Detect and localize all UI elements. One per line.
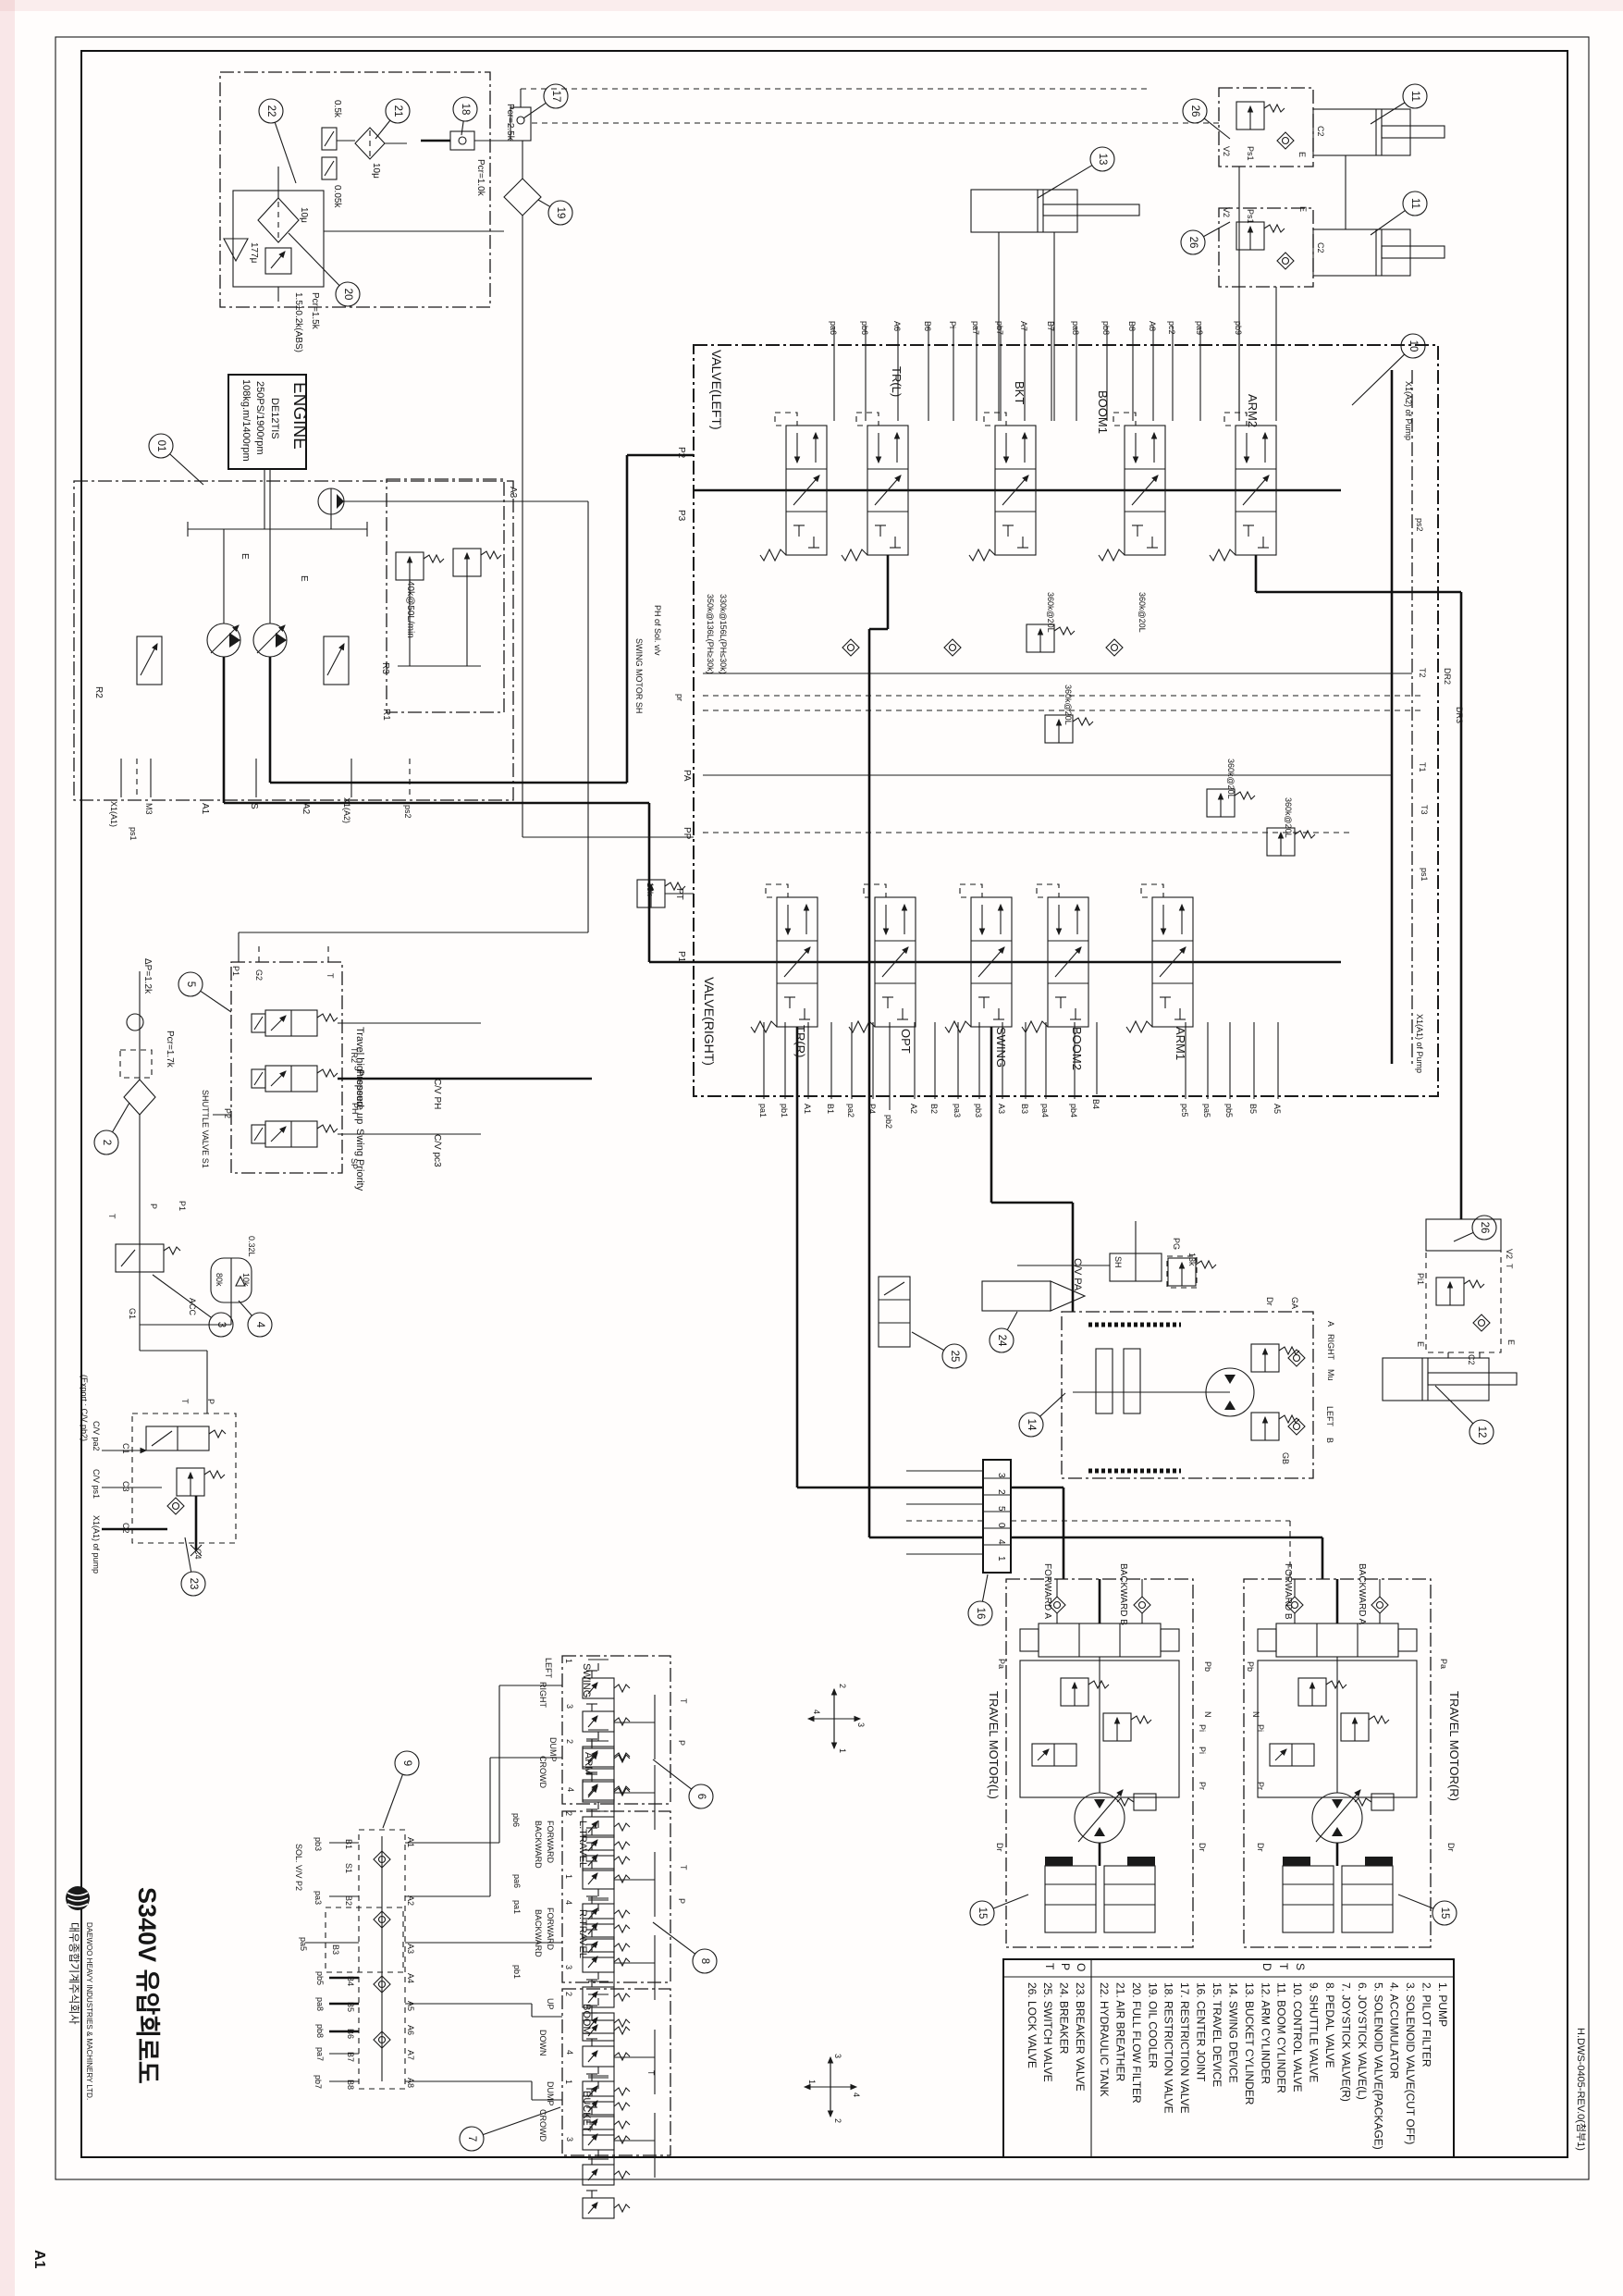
schematic-label: Pi — [1256, 1724, 1265, 1732]
schematic-label: S1 — [344, 1863, 353, 1873]
schematic-label: 1 — [564, 2080, 573, 2084]
schematic-label: Dr — [1198, 1843, 1207, 1852]
schematic-label: BOOM2 — [1070, 1027, 1084, 1070]
schematic-label: 2 — [565, 1739, 574, 1744]
schematic-label: pc5 — [1180, 1104, 1189, 1117]
schematic-label: 10k — [241, 1273, 251, 1287]
balloon-number: 2 — [101, 1140, 112, 1145]
schematic-label: pa7 — [971, 321, 980, 335]
schematic-label: A5 — [406, 2001, 415, 2011]
schematic-label: 3 — [996, 1473, 1006, 1478]
balloon-number: 15 — [1439, 1907, 1450, 1920]
daewoo-logo — [66, 1886, 90, 1910]
schematic-label: E — [1416, 1341, 1425, 1347]
legend-item-std: 21. AIR BREATHER — [1113, 1982, 1126, 2081]
schematic-label: G2 — [254, 969, 264, 981]
balloon-number: 5 — [185, 981, 196, 987]
schematic-label: C/V pc3 — [432, 1134, 442, 1167]
schematic-label: (Export : C/V pb2) — [80, 1375, 89, 1441]
schematic-label: 1 — [564, 1874, 573, 1879]
company-name-ko: 대우종합기계주식회사 — [68, 1922, 80, 2024]
schematic-label: V2 — [1505, 1249, 1514, 1259]
schematic-label: pb6 — [860, 321, 869, 335]
schematic-label: 108kg.m/1400rpm — [240, 379, 252, 462]
balloon-number: 8 — [699, 1958, 710, 1964]
balloon-number: 11 — [1409, 198, 1420, 209]
schematic-label: DUMP — [546, 2081, 555, 2106]
balloon-leader — [153, 1275, 211, 1317]
schematic-label: 360k@20L — [1064, 685, 1073, 725]
schematic-label: C/V ps1 — [92, 1469, 101, 1499]
schematic-label: 10μ — [299, 207, 309, 223]
swing-device-group — [879, 1027, 1313, 1478]
component-balloon-24: 24 — [990, 1312, 1017, 1352]
schematic-label: A3 — [508, 487, 518, 499]
schematic-label: E — [1506, 1339, 1516, 1345]
schematic-label: M3 — [144, 803, 154, 815]
schematic-label: UP — [546, 1998, 555, 2010]
schematic-label: pb7 — [314, 2075, 323, 2089]
legend-item-opt: 23. BREAKER VALVE — [1074, 1982, 1087, 2092]
schematic-label: 3 — [564, 1965, 573, 1969]
schematic-label: A7 — [406, 2050, 415, 2060]
schematic-label: A8 — [1148, 321, 1157, 331]
schematic-label: pb2 — [884, 1115, 893, 1129]
schematic-label: pb8 — [315, 2024, 325, 2038]
schematic-label: 0.05k — [332, 185, 342, 208]
schematic-label: 1 — [838, 1748, 847, 1753]
legend-item-std: 22. HYDRAULIC TANK — [1098, 1982, 1111, 2097]
schematic-label: ps2 — [1415, 518, 1424, 532]
schematic-label: E — [1297, 152, 1307, 157]
schematic-label: E — [299, 575, 309, 582]
schematic-label: A8 — [406, 2078, 415, 2088]
schematic-label: CROWD — [538, 1756, 547, 1788]
schematic-label: FORWARD A — [1042, 1563, 1052, 1619]
schematic-label: ΔP=1.2k — [142, 958, 153, 994]
balloon-leader — [1204, 118, 1230, 139]
schematic-label: 360k@20L — [1226, 759, 1236, 799]
schematic-label: LEFT — [544, 1658, 553, 1679]
schematic-label: A — [1326, 1321, 1335, 1327]
balloon-leader — [1435, 1386, 1473, 1424]
schematic-label: 13k — [1187, 1253, 1197, 1266]
lever-direction-cross-1 — [808, 1689, 860, 1748]
schematic-label: pb5 — [1224, 1104, 1234, 1117]
schematic-label: B — [1325, 1438, 1334, 1443]
schematic-label: pa6 — [829, 321, 838, 335]
schematic-label: PA — [682, 770, 692, 782]
legend-item-std: 6. JOYSTICK VALVE(L) — [1356, 1982, 1369, 2100]
schematic-label: Mu — [1326, 1369, 1335, 1381]
schematic-label: PP — [682, 827, 692, 840]
balloon-number: 3 — [215, 1322, 227, 1327]
legend-item-std: 11. BOOM CYLINDER — [1275, 1982, 1288, 2093]
balloon-number: 26 — [1479, 1222, 1490, 1234]
balloon-number: 16 — [975, 1608, 986, 1620]
component-balloon-5: 5 — [178, 972, 231, 1012]
component-balloon-13: 13 — [1038, 147, 1114, 198]
schematic-label: 4 — [812, 1710, 821, 1714]
balloon-leader — [523, 103, 546, 118]
travel-motor-right — [1244, 1579, 1431, 1947]
schematic-label: SP — [350, 1158, 359, 1169]
schematic-label: DOWN — [538, 2030, 547, 2056]
schematic-label: 4 — [566, 1787, 575, 1792]
schematic-label: B8 — [346, 2080, 355, 2090]
schematic-label: pb3 — [974, 1104, 983, 1117]
schematic-label: Pi — [948, 321, 957, 328]
schematic-label: P — [677, 1740, 686, 1746]
schematic-label: A4 — [406, 1973, 415, 1983]
schematic-label: pb7 — [995, 321, 1004, 335]
legend-item-std: 20. FULL FLOW FILTER — [1130, 1982, 1143, 2104]
schematic-label: P — [206, 1399, 215, 1404]
schematic-label: RIGHT — [1326, 1334, 1335, 1361]
schematic-label: BACKWARD B — [1118, 1563, 1128, 1625]
schematic-label: ARM2 — [1246, 394, 1260, 427]
legend-item-std: 1. PUMP — [1436, 1982, 1449, 2027]
schematic-label: FORWARD B — [1283, 1563, 1293, 1620]
balloon-leader — [289, 233, 339, 286]
schematic-label: B3 — [1020, 1104, 1029, 1114]
schematic-label: Dr — [1446, 1843, 1456, 1852]
schematic-label: Pcr=1.5k — [310, 292, 320, 330]
balloon-number: 4 — [254, 1322, 265, 1328]
schematic-label: pa7 — [315, 2047, 325, 2061]
balloon-leader — [1007, 1312, 1017, 1330]
schematic-label: 5 — [996, 1506, 1006, 1512]
schematic-label: PT — [674, 888, 684, 900]
schematic-label: BKT — [1013, 381, 1027, 404]
schematic-label: A3 — [997, 1104, 1006, 1114]
schematic-label: 3 — [833, 2054, 842, 2058]
schematic-label: BOOM — [581, 2004, 592, 2035]
schematic-label: pa9 — [1195, 321, 1204, 335]
schematic-label: C2 — [121, 1523, 130, 1534]
schematic-label: B6 — [346, 2029, 355, 2039]
schematic-label: B7 — [346, 2052, 355, 2062]
balloon-leader — [383, 1774, 402, 1828]
legend-item-std: 10. CONTROL VALVE — [1291, 1982, 1304, 2092]
schematic-label: C3 — [121, 1481, 130, 1492]
schematic-label: pb9 — [1234, 321, 1243, 335]
schematic-label: RIGHT — [538, 1682, 547, 1709]
sheet-title: S340V 유압회로도 — [133, 1887, 161, 2084]
schematic-label: SWING — [581, 1663, 592, 1697]
component-balloon-2: 2 — [94, 1103, 129, 1154]
schematic-label: 350k@136L(PH≥30k) — [706, 594, 715, 674]
balloon-number: 23 — [188, 1578, 199, 1590]
legend-item-std: 3. SOLENOID VALVE(CUT OFF) — [1404, 1982, 1417, 2144]
schematic-label: Pcr=2.5k — [505, 104, 515, 142]
balloon-number: 11 — [1409, 91, 1420, 102]
balloon-number: 26 — [1187, 237, 1199, 249]
schematic-label: 19k — [646, 883, 655, 896]
schematic-label: P2 — [223, 1108, 232, 1118]
schematic-label: C4 — [193, 1549, 203, 1560]
schematic-label: C2 — [1316, 242, 1325, 253]
component-balloon-11: 11 — [1371, 84, 1427, 124]
schematic-label: P1 — [178, 1201, 187, 1211]
legend-item-std: 17. RESTRICTION VALVE — [1178, 1982, 1191, 2114]
legend-item-std: 4. ACCUMULATOR — [1388, 1982, 1401, 2080]
schematic-label: A5 — [1273, 1104, 1282, 1114]
schematic-label: FORWARD — [546, 1821, 555, 1863]
schematic-label: P — [149, 1204, 158, 1209]
schematic-label: B2 — [929, 1104, 939, 1114]
schematic-label: A1 — [200, 803, 210, 815]
balloon-number: 26 — [1189, 105, 1200, 117]
schematic-label: 1.5±0.2k(ABS) — [293, 292, 303, 352]
balloon-number: 01 — [155, 440, 166, 452]
schematic-label: pa5 — [299, 1937, 308, 1951]
schematic-label: C/V PA — [1072, 1258, 1083, 1291]
schematic-label: Pcr=1.0k — [475, 159, 486, 197]
schematic-label: BACKWARD A — [1357, 1563, 1367, 1625]
schematic-label: ps2 — [403, 805, 412, 819]
schematic-label: DE12TIS — [269, 398, 280, 439]
schematic-label: T2 — [1418, 668, 1427, 678]
legend-item-std: 8. PEDAL VALVE — [1323, 1982, 1336, 2068]
component-balloon-26: 26 — [1183, 99, 1230, 139]
schematic-label: pa4 — [1040, 1104, 1050, 1117]
schematic-label: 4 — [996, 1539, 1006, 1545]
schematic-label: 330k@156L(PH≤30k) — [719, 594, 728, 674]
schematic-label: DR2 — [1443, 668, 1452, 685]
balloon-leader — [993, 1895, 1028, 1908]
schematic-label: Pa — [1439, 1659, 1448, 1669]
schematic-label: DR3 — [1455, 707, 1464, 723]
component-balloon-19: 19 — [538, 200, 572, 225]
schematic-label: pa5 — [1202, 1104, 1211, 1117]
balloon-number: 12 — [1476, 1426, 1487, 1438]
schematic-label: 3 — [856, 1722, 866, 1727]
schematic-label: 2 — [564, 1811, 573, 1816]
component-balloon-4: 4 — [239, 1301, 272, 1337]
component-balloon-01: 01 — [149, 434, 203, 485]
balloon-number: 21 — [392, 105, 403, 117]
schematic-label: Pi — [1198, 1724, 1207, 1732]
schematic-label: BACKWARD — [534, 1821, 543, 1869]
schematic-label: OPT — [899, 1029, 913, 1054]
legend-item-std: 15. TRAVEL DEVICE — [1211, 1982, 1223, 2087]
schematic-label: Dr — [1265, 1297, 1274, 1306]
schematic-label: TR(L) — [890, 366, 904, 397]
schematic-label: P3 — [676, 510, 686, 522]
schematic-label: 3 — [565, 1704, 574, 1709]
port-tick-lines — [764, 326, 1278, 1110]
component-balloon-17: 17 — [523, 84, 568, 118]
schematic-label: 360k@20L — [1284, 797, 1293, 838]
balloon-leader — [170, 454, 203, 485]
schematic-label: TRAVEL MOTOR(R) — [1447, 1691, 1461, 1801]
schematic-label: 2 — [564, 1992, 573, 1996]
legend-item-std: 2. PILOT FILTER — [1420, 1982, 1433, 2068]
schematic-label: 1 — [807, 2080, 817, 2084]
schematic-label: B2 — [344, 1895, 353, 1906]
balloon-number: 15 — [977, 1907, 988, 1920]
travel-motor-left — [1006, 1579, 1193, 1947]
legend-header-opt: T — [1043, 1963, 1056, 1970]
schematic-label: LEFT — [1325, 1406, 1334, 1427]
arm-cylinder-group — [1256, 555, 1517, 1401]
balloon-leader — [1454, 1232, 1473, 1241]
schematic-label: P4 — [867, 1104, 877, 1114]
schematic-label: DUMP — [548, 1737, 558, 1762]
schematic-label: A1 — [406, 1837, 415, 1847]
schematic-label: ARM1 — [1174, 1027, 1187, 1060]
schematic-label: X1(A2) of Pump — [1404, 381, 1413, 440]
balloon-leader — [1038, 166, 1092, 198]
schematic-label: P1 — [231, 966, 240, 976]
schematic-label: C1 — [121, 1443, 130, 1454]
schematic-label: 40k@50L/min — [405, 581, 415, 638]
balloon-leader — [538, 200, 550, 206]
legend-item-opt: 26. LOCK VALVE — [1026, 1982, 1039, 2068]
legend-item-std: 18. RESTRICTION VALVE — [1162, 1982, 1175, 2114]
joystick-valve-right — [562, 1989, 670, 2218]
balloon-leader — [239, 1301, 252, 1315]
component-balloon-11: 11 — [1371, 191, 1427, 235]
schematic-label: SOL. V/V P2 — [294, 1844, 303, 1891]
schematic-label: pa2 — [846, 1104, 855, 1117]
schematic-label: B4 — [1091, 1099, 1100, 1109]
schematic-label: A2 — [909, 1104, 918, 1114]
schematic-label: SWING — [994, 1027, 1008, 1068]
schematic-label: ps1 — [1420, 868, 1429, 882]
legend-item-std: 13. BUCKET CYLINDER — [1243, 1982, 1256, 2105]
schematic-label: V2 — [1222, 207, 1231, 217]
legend-item-std: 12. ARM CYLINDER — [1259, 1982, 1272, 2084]
schematic-label: T1 — [1418, 762, 1427, 772]
schematic-label: B5 — [346, 2002, 355, 2012]
component-balloon-6: 6 — [653, 1759, 713, 1808]
schematic-label: 4 — [852, 2092, 861, 2097]
schematic-label: 10μ — [371, 163, 381, 179]
legend-item-std: 7. JOYSTICK VALVE(R) — [1339, 1982, 1352, 2102]
balloon-number: 25 — [949, 1351, 960, 1363]
balloon-leader — [483, 2107, 560, 2135]
schematic-label: 0 — [996, 1523, 1006, 1528]
schematic-label: GB — [1281, 1452, 1290, 1464]
schematic-label: PH of Sol. v/v — [653, 605, 662, 656]
schematic-label: G1 — [128, 1308, 137, 1319]
legend-item-std: 19. OIL COOLER — [1146, 1982, 1159, 2068]
schematic-label: Pressure up — [354, 1069, 365, 1124]
legend-layer: 1. PUMP2. PILOT FILTER3. SOLENOID VALVE(… — [1026, 1963, 1449, 2150]
schematic-label: pa1 — [512, 1900, 522, 1914]
schematic-label: pa8 — [315, 1997, 325, 2011]
schematic-label: VALVE(LEFT) — [709, 350, 724, 430]
schematic-label: SHUTTLE VALVE S1 — [201, 1090, 210, 1168]
balloon-leader — [1398, 1895, 1433, 1908]
schematic-label: A7 — [1019, 321, 1028, 331]
balloon-number: 7 — [466, 2136, 477, 2142]
schematic-label: Pi1 — [1416, 1273, 1425, 1285]
schematic-label: pa3 — [314, 1891, 323, 1905]
legend-item-opt: 25. SWITCH VALVE — [1041, 1982, 1054, 2082]
balloon-number: 20 — [342, 289, 353, 301]
balloon-number: 17 — [550, 91, 561, 103]
schematic-label: TRAVEL MOTOR(L) — [987, 1691, 1001, 1799]
schematic-label: A2 — [406, 1895, 415, 1906]
schematic-label: P — [677, 1898, 686, 1904]
schematic-label: R2 — [93, 686, 104, 698]
component-balloon-12: 12 — [1435, 1386, 1494, 1444]
schematic-label: VALVE(RIGHT) — [702, 977, 717, 1066]
sheet-size-label: A1 — [31, 2250, 47, 2269]
schematic-label: pc2 — [1167, 321, 1176, 335]
legend-header-std: T — [1277, 1963, 1290, 1970]
schematic-label: B1 — [344, 1839, 353, 1849]
balloon-leader — [912, 1332, 944, 1351]
schematic-label: BUCKET — [581, 2091, 592, 2132]
component-balloon-26: 26 — [1181, 222, 1230, 254]
schematic-label: C2 — [1467, 1354, 1476, 1365]
schematic-label: 4 — [565, 2050, 574, 2055]
legend-item-std: 16. CENTER JOINT — [1195, 1982, 1208, 2082]
component-balloon-23: 23 — [181, 1537, 205, 1596]
schematic-label: pa8 — [1071, 321, 1080, 335]
balloon-number: 18 — [460, 104, 471, 116]
control-valve-group — [224, 345, 1438, 1096]
balloon-leader — [375, 120, 390, 139]
schematic-label: 1 — [996, 1556, 1006, 1562]
schematic-label: 80k — [215, 1273, 224, 1287]
schematic-label: B4 — [346, 1976, 355, 1986]
schematic-label: L.TRAVEL — [577, 1821, 588, 1868]
schematic-label: N — [1203, 1711, 1212, 1718]
hydraulic-circuit-diagram: S340V 유압회로도대우종합기계주식회사DAEWOO HEAVY INDUST… — [0, 0, 1623, 2296]
schematic-label: pr — [675, 694, 684, 701]
schematic-label: T — [326, 973, 335, 979]
schematic-label: X1(A1) — [109, 801, 118, 827]
schematic-label: B6 — [923, 321, 932, 331]
schematic-label: Ps1 — [1246, 209, 1255, 224]
schematic-label: Pcr=1.7k — [165, 1031, 175, 1068]
schematic-label: Pb — [1246, 1661, 1255, 1672]
schematic-label: A3 — [406, 1944, 415, 1954]
schematic-label: 2 — [838, 1684, 847, 1688]
balloon-leader — [113, 1103, 129, 1132]
component-balloon-9: 9 — [383, 1751, 419, 1828]
schematic-label: T — [107, 1214, 117, 1219]
schematic-label: B7 — [1046, 321, 1055, 331]
balloon-leader — [461, 121, 463, 135]
balloon-number: 10 — [1408, 340, 1419, 352]
legend-item-std: 5. SOLENOID VALVE(PACKAGE) — [1371, 1982, 1384, 2150]
balloon-leader — [1352, 354, 1405, 405]
schematic-label: PG — [1172, 1238, 1181, 1250]
schematic-label: R3 — [380, 662, 390, 674]
schematic-label: BOOM1 — [1096, 390, 1110, 434]
schematic-label: pa3 — [953, 1104, 962, 1117]
schematic-label: pb1 — [512, 1965, 522, 1979]
balloon-leader — [1203, 222, 1230, 237]
schematic-label: P2 — [676, 447, 686, 459]
schematic-label: X1(A1) of pump — [92, 1515, 101, 1574]
legend-header-std: S — [1294, 1963, 1307, 1970]
balloon-number: 6 — [695, 1794, 707, 1799]
schematic-label: X1(A1) of Pump — [1415, 1014, 1424, 1073]
balloon-leader — [653, 1759, 692, 1789]
schematic-label: B8 — [1127, 321, 1137, 331]
drawing-sheet: S340V 유압회로도대우종합기계주식회사DAEWOO HEAVY INDUST… — [0, 0, 1623, 2296]
balloon-leader — [653, 1922, 695, 1954]
schematic-label: R1 — [381, 709, 391, 721]
schematic-label: ACC — [188, 1298, 197, 1316]
